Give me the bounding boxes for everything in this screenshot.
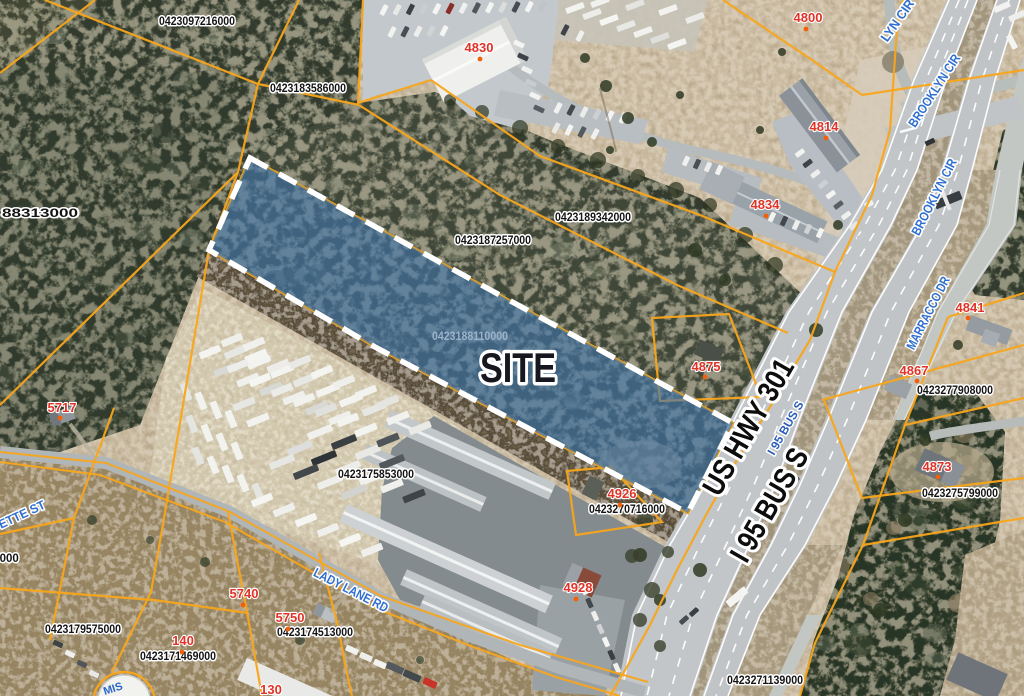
svg-text:0423270716000: 0423270716000 [589,504,665,516]
svg-text:0423175853000: 0423175853000 [338,469,414,481]
svg-text:7000: 7000 [0,553,19,565]
svg-text:4800: 4800 [794,10,823,25]
svg-text:SITE: SITE [480,344,556,391]
svg-text:0423171469000: 0423171469000 [140,651,216,663]
svg-text:4873: 4873 [923,459,952,474]
svg-text:4830: 4830 [465,40,494,55]
svg-text:130: 130 [260,682,282,696]
svg-text:5717: 5717 [48,400,77,415]
svg-text:0423277908000: 0423277908000 [917,385,993,397]
svg-text:0423187257000: 0423187257000 [455,235,531,247]
svg-text:4875: 4875 [692,359,721,374]
svg-text:4841: 4841 [956,300,985,315]
svg-text:4834: 4834 [751,197,781,212]
svg-text:4814: 4814 [810,119,840,134]
svg-text:140: 140 [172,633,194,648]
svg-text:4867: 4867 [900,363,929,378]
svg-text:88313000: 88313000 [2,208,78,220]
svg-text:0423271139000: 0423271139000 [727,675,803,687]
svg-text:0423179575000: 0423179575000 [45,624,121,636]
svg-text:5750: 5750 [276,610,305,625]
svg-text:4926: 4926 [608,486,637,501]
svg-text:4928: 4928 [564,580,593,595]
svg-text:0423097216000: 0423097216000 [159,16,235,28]
svg-text:0423183586000: 0423183586000 [270,83,346,95]
svg-text:0423275799000: 0423275799000 [922,488,998,500]
svg-text:0423189342000: 0423189342000 [555,212,631,224]
svg-text:5740: 5740 [230,586,259,601]
svg-text:0423188110000: 0423188110000 [432,331,508,343]
